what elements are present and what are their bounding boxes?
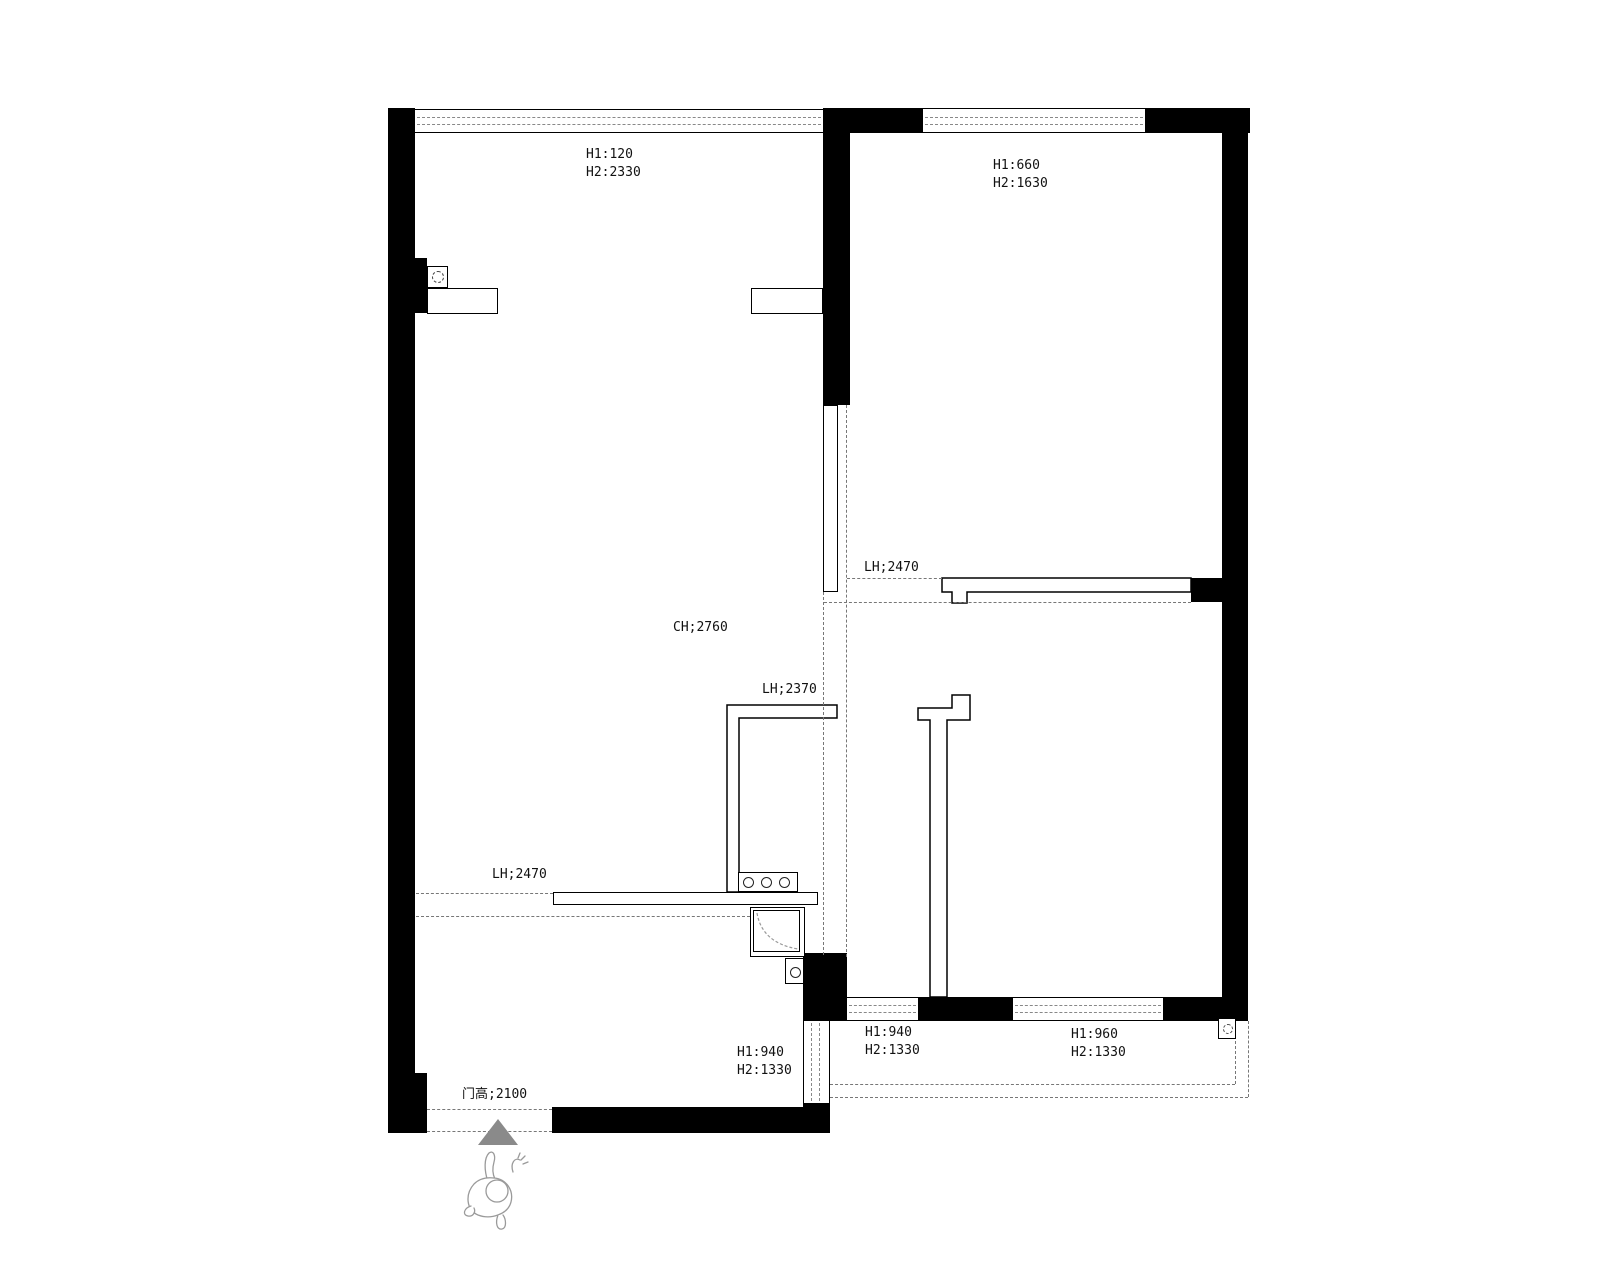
opening-dash-right xyxy=(846,405,847,957)
wall-partition-end xyxy=(1191,578,1222,602)
entry-door-dash-top xyxy=(427,1109,552,1110)
kitchen-dash-lower xyxy=(416,916,750,917)
window-bottom-right xyxy=(1013,997,1163,1021)
wall-below-side-window xyxy=(803,1103,830,1133)
window-bottom-mid xyxy=(847,997,918,1021)
passage-upper-dash-bottom xyxy=(824,602,1191,603)
opening-dash-left xyxy=(823,592,824,955)
outlet-box xyxy=(427,266,448,288)
window-top-left xyxy=(415,109,823,133)
partition-middle-hollow xyxy=(823,405,838,592)
wall-corner-block xyxy=(803,953,847,1021)
cabinet-left xyxy=(427,288,498,314)
partition-bar xyxy=(942,578,1191,604)
label-window-bottom-mid: H1:940 H2:1330 xyxy=(865,1024,920,1060)
cooktop xyxy=(738,872,798,892)
balcony-drain-box xyxy=(1218,1018,1236,1039)
cabinet-right xyxy=(751,288,823,314)
shaft-box xyxy=(750,907,805,957)
wall-left-pier-bottom xyxy=(415,1073,427,1133)
wall-bottom-left xyxy=(552,1107,828,1133)
drain-box xyxy=(785,958,804,984)
wall-bottom-seg1 xyxy=(918,997,1013,1021)
partition-t-wall xyxy=(918,695,971,998)
balcony-dash-outer-h xyxy=(830,1097,1248,1098)
balcony-dash-inner-h xyxy=(830,1084,1235,1085)
entry-arrow-icon xyxy=(478,1119,518,1145)
wall-top-center xyxy=(850,108,923,133)
wall-left-pier-top xyxy=(415,258,427,313)
label-entry-door-height: 门高;2100 xyxy=(462,1086,527,1104)
label-window-top-left: H1:120 H2:2330 xyxy=(586,146,641,182)
label-window-bottom-right: H1:960 H2:1330 xyxy=(1071,1026,1126,1062)
passage-upper-dash-top xyxy=(847,578,942,579)
wall-left xyxy=(388,108,415,1133)
window-side-left xyxy=(803,1021,830,1103)
label-window-top-right: H1:660 H2:1630 xyxy=(993,157,1048,193)
label-passage-kitchen: LH;2470 xyxy=(492,866,547,884)
label-window-bottom-left: H1:940 H2:1330 xyxy=(737,1044,792,1080)
person-figure-icon xyxy=(458,1148,533,1234)
shaft-swing-arc xyxy=(754,911,802,953)
partition-l-wall xyxy=(727,705,838,893)
label-ceiling-height: CH;2760 xyxy=(673,619,728,637)
label-passage-upper: LH;2470 xyxy=(864,559,919,577)
wall-right xyxy=(1222,108,1248,1021)
floor-plan-canvas: H1:120 H2:2330 H1:660 H2:1630 CH;2760 LH… xyxy=(0,0,1600,1280)
window-top-right xyxy=(923,108,1145,133)
label-passage-mid: LH;2370 xyxy=(762,681,817,699)
balcony-dash-outer-v xyxy=(1248,1021,1249,1097)
kitchen-dash-upper xyxy=(416,893,553,894)
kitchen-counter-wall xyxy=(553,892,818,905)
wall-middle xyxy=(823,108,850,405)
